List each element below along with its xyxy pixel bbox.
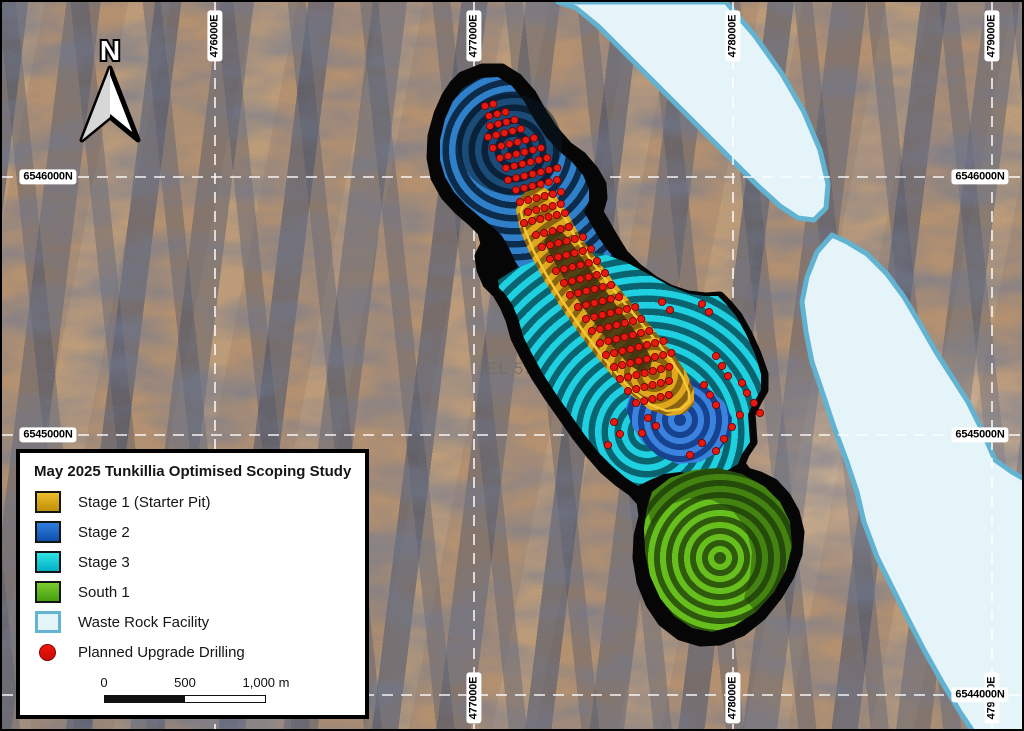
drill-hole-marker <box>599 283 606 290</box>
drill-hole-marker <box>545 166 552 173</box>
waste-rock-facility-south <box>802 235 1024 731</box>
drill-hole-marker <box>629 317 636 324</box>
drill-hole-marker <box>686 451 693 458</box>
drill-hole-marker <box>700 381 707 388</box>
drill-hole-marker <box>521 148 528 155</box>
drill-hole-marker <box>502 108 509 115</box>
drill-hole-marker <box>610 418 617 425</box>
scale-bar-ticks: 05001,000 m <box>104 675 266 692</box>
drill-hole-marker <box>652 422 659 429</box>
drill-hole-marker <box>537 144 544 151</box>
legend-label-4: South 1 <box>78 584 130 601</box>
drill-hole-marker <box>546 255 553 262</box>
drill-hole-marker <box>521 172 528 179</box>
drill-hole-marker <box>706 391 713 398</box>
drill-hole-marker <box>629 331 636 338</box>
legend-items: Stage 1 (Starter Pit)Stage 2Stage 3South… <box>32 487 353 667</box>
drill-hole-marker <box>535 156 542 163</box>
drill-hole-marker <box>649 381 656 388</box>
drill-hole-marker <box>750 399 757 406</box>
drill-hole-marker <box>485 112 492 119</box>
drill-hole-marker <box>698 439 705 446</box>
drill-hole-marker <box>489 144 496 151</box>
drill-hole-marker <box>657 379 664 386</box>
drill-hole-marker <box>577 261 584 268</box>
drill-hole-marker <box>587 245 594 252</box>
drill-hole-marker <box>743 389 750 396</box>
drill-hole-marker <box>541 204 548 211</box>
drill-hole-marker <box>736 411 743 418</box>
drill-hole-marker <box>635 357 642 364</box>
drill-hole-marker <box>538 243 545 250</box>
legend-label-1: Stage 1 (Starter Pit) <box>78 494 211 511</box>
legend-panel: May 2025 Tunkillia Optimised Scoping Stu… <box>16 449 369 719</box>
drill-hole-marker <box>557 188 564 195</box>
drill-hole-marker <box>596 339 603 346</box>
drill-hole-marker <box>646 327 653 334</box>
drill-hole-marker <box>724 372 731 379</box>
drill-hole-marker <box>637 329 644 336</box>
drill-hole-marker <box>638 429 645 436</box>
drill-hole-marker <box>621 333 628 340</box>
drill-hole-marker <box>549 227 556 234</box>
drill-hole-marker <box>560 279 567 286</box>
drill-hole-marker <box>665 377 672 384</box>
drill-hole-marker <box>575 289 582 296</box>
scale-bar-filled-segment <box>105 696 185 702</box>
drill-hole-marker <box>601 269 608 276</box>
drill-hole-marker <box>537 215 544 222</box>
drill-hole-marker <box>557 225 564 232</box>
drill-hole-marker <box>610 363 617 370</box>
drill-hole-marker <box>543 154 550 161</box>
drill-hole-marker <box>529 146 536 153</box>
drill-hole-marker <box>607 295 614 302</box>
drill-hole-marker <box>571 235 578 242</box>
drill-hole-marker <box>625 373 632 380</box>
drill-hole-marker <box>615 293 622 300</box>
drill-hole-marker <box>643 341 650 348</box>
drill-hole-marker <box>530 134 537 141</box>
drill-hole-marker <box>633 385 640 392</box>
drill-hole-marker <box>529 182 536 189</box>
drill-hole-marker <box>513 174 520 181</box>
drill-hole-marker <box>552 267 559 274</box>
scale-bar-tick: 1,000 m <box>243 675 290 690</box>
legend-label-6: Planned Upgrade Drilling <box>78 644 245 661</box>
legend-title: May 2025 Tunkillia Optimised Scoping Stu… <box>34 463 353 480</box>
drill-hole-marker <box>506 140 513 147</box>
drill-hole-marker <box>666 306 673 313</box>
drill-hole-marker <box>613 335 620 342</box>
drill-hole-marker <box>649 395 656 402</box>
drill-hole-marker <box>591 285 598 292</box>
drill-hole-marker <box>641 397 648 404</box>
drill-hole-marker <box>705 308 712 315</box>
legend-swatch-1 <box>35 491 61 513</box>
drill-hole-marker <box>532 231 539 238</box>
drill-hole-marker <box>490 100 497 107</box>
drill-hole-marker <box>632 303 639 310</box>
drill-hole-marker <box>522 136 529 143</box>
scale-bar-track <box>104 695 266 703</box>
drill-hole-marker <box>537 168 544 175</box>
drill-hole-marker <box>698 300 705 307</box>
drill-hole-marker <box>579 247 586 254</box>
drill-hole-marker <box>657 365 664 372</box>
drill-hole-marker <box>585 259 592 266</box>
drill-hole-marker <box>593 271 600 278</box>
drill-hole-marker <box>756 409 763 416</box>
legend-item-3: Stage 3 <box>32 547 353 577</box>
drill-hole-marker <box>738 379 745 386</box>
drill-hole-marker <box>585 273 592 280</box>
drill-hole-marker <box>615 307 622 314</box>
drill-hole-marker <box>511 162 518 169</box>
north-arrow-label: N <box>100 35 120 66</box>
drill-hole-marker <box>519 160 526 167</box>
drill-hole-marker <box>641 383 648 390</box>
drill-hole-marker <box>529 217 536 224</box>
drill-hole-marker <box>635 343 642 350</box>
drill-hole-marker <box>494 110 501 117</box>
drill-hole-marker <box>651 353 658 360</box>
drill-hole-marker <box>605 323 612 330</box>
drill-hole-marker <box>504 176 511 183</box>
drill-hole-marker <box>712 352 719 359</box>
drill-hole-marker <box>569 263 576 270</box>
drill-hole-marker <box>563 251 570 258</box>
drill-hole-marker <box>638 315 645 322</box>
legend-label-5: Waste Rock Facility <box>78 614 209 631</box>
drill-hole-marker <box>720 435 727 442</box>
drill-hole-marker <box>561 265 568 272</box>
drill-hole-marker <box>565 223 572 230</box>
drill-hole-marker <box>541 229 548 236</box>
drill-hole-marker <box>514 138 521 145</box>
drill-hole-marker <box>569 277 576 284</box>
drill-hole-marker <box>712 401 719 408</box>
drill-hole-marker <box>579 233 586 240</box>
drill-hole-marker <box>563 237 570 244</box>
north-arrow: N <box>68 28 152 146</box>
legend-swatch-3 <box>35 551 61 573</box>
drill-hole-marker <box>593 257 600 264</box>
drill-hole-marker <box>619 361 626 368</box>
legend-item-5: Waste Rock Facility <box>32 607 353 637</box>
drill-hole-marker <box>591 313 598 320</box>
drill-hole-marker <box>484 133 491 140</box>
drill-hole-marker <box>649 367 656 374</box>
drill-hole-marker <box>643 355 650 362</box>
drill-hole-marker <box>505 152 512 159</box>
drill-hole-marker <box>533 206 540 213</box>
drill-hole-marker <box>566 291 573 298</box>
drill-hole-marker <box>486 122 493 129</box>
drill-hole-marker <box>605 337 612 344</box>
drill-hole-marker <box>644 414 651 421</box>
drill-hole-marker <box>621 319 628 326</box>
drill-hole-marker <box>597 325 604 332</box>
drill-hole-marker <box>493 131 500 138</box>
drill-hole-marker <box>583 287 590 294</box>
drill-hole-marker <box>557 200 564 207</box>
drill-hole-marker <box>660 337 667 344</box>
drill-hole-marker <box>521 184 528 191</box>
drill-hole-marker <box>619 347 626 354</box>
legend-label-2: Stage 2 <box>78 524 130 541</box>
drill-hole-marker <box>728 423 735 430</box>
scale-bar: 05001,000 m <box>104 675 266 715</box>
drill-hole-marker <box>582 315 589 322</box>
legend-item-6: Planned Upgrade Drilling <box>32 637 353 667</box>
scale-bar-tick: 0 <box>100 675 107 690</box>
drill-hole-marker <box>583 301 590 308</box>
legend-swatch-4 <box>35 581 61 603</box>
drill-hole-marker <box>652 339 659 346</box>
drill-hole-marker <box>623 305 630 312</box>
drill-hole-marker <box>611 349 618 356</box>
drill-hole-marker <box>657 393 664 400</box>
drill-hole-marker <box>588 327 595 334</box>
drill-hole-marker <box>666 363 673 370</box>
drill-hole-marker <box>607 309 614 316</box>
drill-hole-marker <box>495 120 502 127</box>
legend-item-4: South 1 <box>32 577 353 607</box>
drill-hole-marker <box>599 311 606 318</box>
drill-hole-marker <box>718 362 725 369</box>
drill-hole-marker <box>599 297 606 304</box>
drill-hole-marker <box>616 375 623 382</box>
drill-hole-marker <box>624 387 631 394</box>
legend-swatch-2 <box>35 521 61 543</box>
drill-hole-marker <box>525 196 532 203</box>
drill-hole-marker <box>604 441 611 448</box>
drill-hole-marker <box>516 198 523 205</box>
legend-swatch-5 <box>35 611 61 633</box>
drill-hole-marker <box>509 127 516 134</box>
drill-hole-marker <box>502 164 509 171</box>
legend-label-3: Stage 3 <box>78 554 130 571</box>
drill-hole-marker <box>641 369 648 376</box>
map-canvas: EL 590 476000E477000E477000E478000E47800… <box>0 0 1024 731</box>
drill-hole-marker <box>503 118 510 125</box>
drill-hole-marker <box>537 180 544 187</box>
drill-hole-marker <box>512 186 519 193</box>
drill-hole-marker <box>541 192 548 199</box>
legend-item-1: Stage 1 (Starter Pit) <box>32 487 353 517</box>
drill-hole-marker <box>549 202 556 209</box>
drill-hole-marker <box>613 321 620 328</box>
drill-hole-marker <box>658 298 665 305</box>
drill-hole-marker <box>555 239 562 246</box>
drill-hole-marker <box>660 351 667 358</box>
drill-hole-marker <box>520 219 527 226</box>
drill-hole-marker <box>496 154 503 161</box>
drill-hole-marker <box>529 170 536 177</box>
drill-hole-marker <box>547 241 554 248</box>
drill-hole-marker <box>511 116 518 123</box>
drill-hole-marker <box>602 351 609 358</box>
drill-hole-marker <box>554 164 561 171</box>
legend-swatch-6 <box>39 644 56 661</box>
drill-hole-marker <box>549 190 556 197</box>
drill-hole-marker <box>627 359 634 366</box>
drill-hole-marker <box>571 249 578 256</box>
drill-hole-marker <box>555 253 562 260</box>
drill-hole-marker <box>498 142 505 149</box>
drill-hole-marker <box>545 178 552 185</box>
drill-hole-marker <box>607 281 614 288</box>
drill-hole-marker <box>501 129 508 136</box>
drill-hole-marker <box>553 211 560 218</box>
drill-hole-marker <box>481 102 488 109</box>
drill-hole-marker <box>668 349 675 356</box>
drill-hole-marker <box>533 194 540 201</box>
drill-hole-marker <box>513 150 520 157</box>
drill-hole-marker <box>577 275 584 282</box>
drill-hole-marker <box>665 391 672 398</box>
drill-hole-marker <box>553 176 560 183</box>
drill-hole-marker <box>524 208 531 215</box>
drill-hole-marker <box>633 371 640 378</box>
drill-hole-marker <box>712 447 719 454</box>
drill-hole-marker <box>517 125 524 132</box>
scale-bar-tick: 500 <box>174 675 196 690</box>
drill-hole-marker <box>627 345 634 352</box>
drill-hole-marker <box>616 430 623 437</box>
drill-hole-marker <box>632 399 639 406</box>
drill-hole-marker <box>591 299 598 306</box>
drill-hole-marker <box>527 158 534 165</box>
drill-hole-marker <box>561 209 568 216</box>
legend-item-2: Stage 2 <box>32 517 353 547</box>
drill-hole-marker <box>574 303 581 310</box>
drill-hole-marker <box>545 213 552 220</box>
